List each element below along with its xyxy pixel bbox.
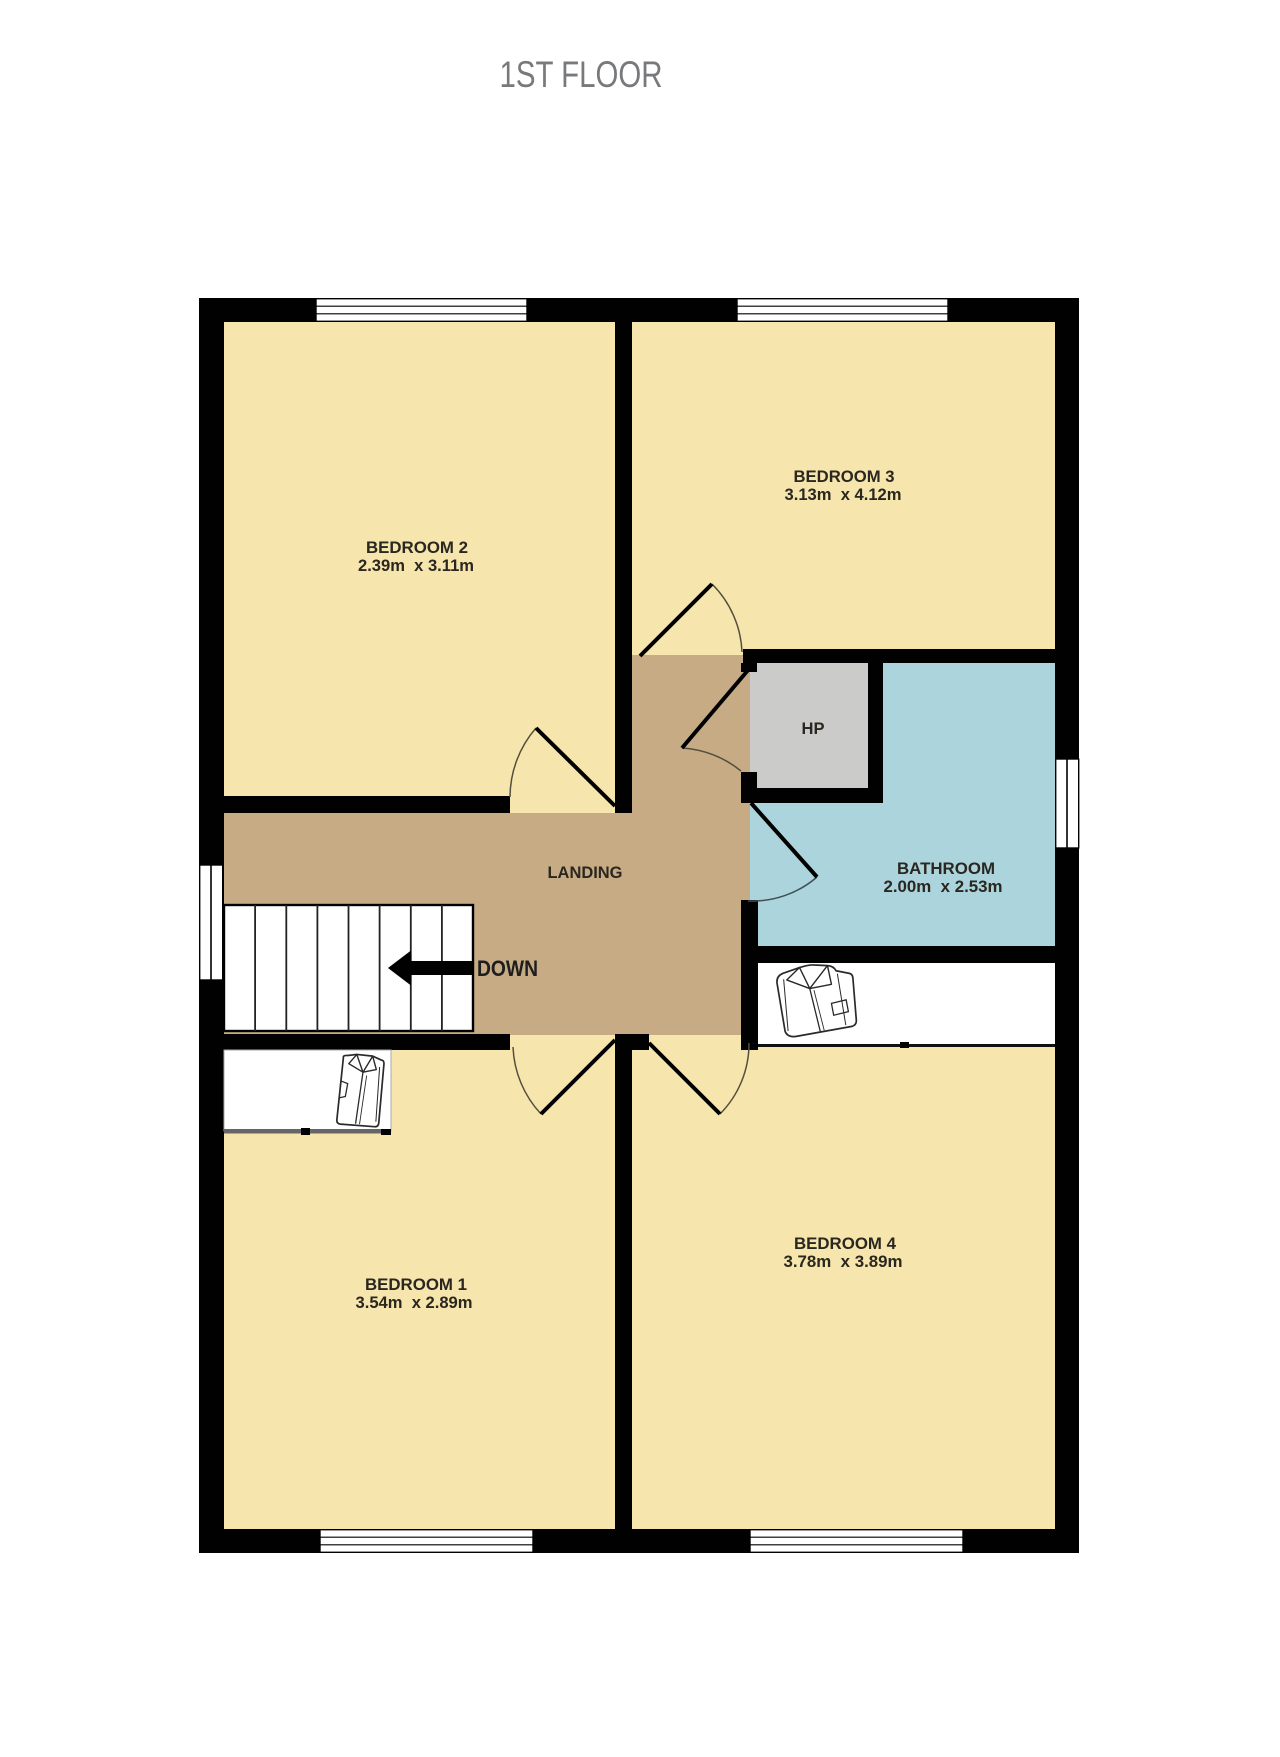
svg-text:1ST FLOOR: 1ST FLOOR [500,54,663,95]
svg-text:LANDING: LANDING [548,863,623,882]
svg-text:2.00m x 2.53m: 2.00m x 2.53m [884,877,1003,896]
svg-text:HP: HP [802,719,825,738]
svg-text:BEDROOM 2: BEDROOM 2 [366,538,468,557]
svg-text:DOWN: DOWN [477,956,538,981]
svg-text:BEDROOM 4: BEDROOM 4 [794,1234,897,1253]
svg-text:3.54m x 2.89m: 3.54m x 2.89m [356,1293,473,1312]
svg-text:2.39m x 3.11m: 2.39m x 3.11m [358,556,474,575]
svg-text:BEDROOM 1: BEDROOM 1 [365,1275,467,1294]
svg-text:3.13m x 4.12m: 3.13m x 4.12m [785,485,902,504]
svg-text:BEDROOM 3: BEDROOM 3 [794,467,895,486]
svg-text:BATHROOM: BATHROOM [897,859,995,878]
svg-text:3.78m x 3.89m: 3.78m x 3.89m [784,1252,903,1271]
